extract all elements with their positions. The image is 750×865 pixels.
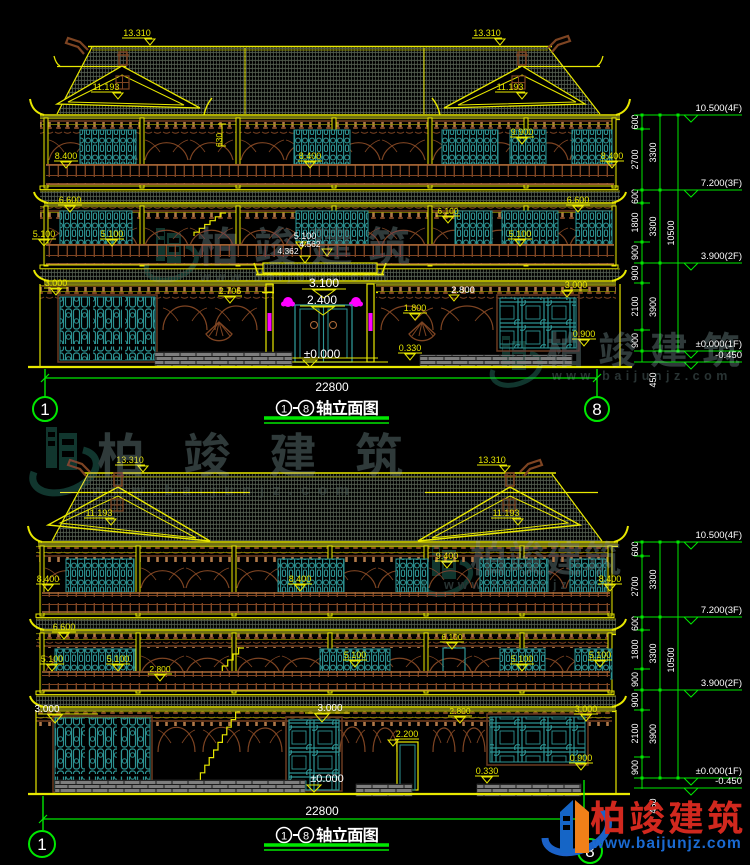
svg-text:5.100: 5.100 (33, 229, 56, 239)
svg-text:8: 8 (592, 400, 601, 419)
svg-text:7.200(3F): 7.200(3F) (701, 605, 742, 616)
svg-text:5.100: 5.100 (107, 654, 130, 664)
svg-text:0.330: 0.330 (476, 766, 499, 776)
svg-text:www.baijunjz.com: www.baijunjz.com (443, 578, 616, 592)
svg-text:11.193: 11.193 (493, 508, 520, 518)
svg-text:±0.000(1F): ±0.000(1F) (696, 339, 742, 350)
svg-text:8.400: 8.400 (299, 151, 322, 161)
svg-text:±0.000: ±0.000 (310, 773, 344, 785)
svg-text:2700: 2700 (630, 576, 640, 596)
svg-text:10500: 10500 (666, 647, 676, 672)
svg-text:10.500(4F): 10.500(4F) (696, 103, 742, 114)
svg-text:900: 900 (630, 245, 640, 260)
svg-text:2100: 2100 (630, 723, 640, 743)
svg-text:-0.450: -0.450 (715, 776, 742, 787)
svg-text:9.900: 9.900 (511, 127, 534, 137)
svg-text:www.baijunjz.com: www.baijunjz.com (91, 482, 357, 499)
svg-text:www.baijunjz.com: www.baijunjz.com (551, 369, 732, 383)
svg-text:6.600: 6.600 (53, 622, 76, 632)
svg-text:www.baijunjz.com: www.baijunjz.com (199, 269, 392, 284)
svg-text:3.000: 3.000 (34, 704, 59, 715)
svg-text:11.193: 11.193 (93, 82, 120, 92)
svg-text:7.200(3F): 7.200(3F) (701, 178, 742, 189)
svg-text:10500: 10500 (666, 220, 676, 245)
svg-text:5.100: 5.100 (101, 229, 124, 239)
svg-text:3300: 3300 (648, 569, 658, 589)
svg-text:5.100: 5.100 (344, 650, 367, 660)
svg-text:8.400: 8.400 (37, 574, 60, 584)
svg-text:13.310: 13.310 (478, 455, 506, 465)
svg-text:1: 1 (281, 404, 287, 416)
svg-text:8.400: 8.400 (601, 151, 624, 161)
svg-text:6.100: 6.100 (441, 632, 463, 642)
svg-text:8.400: 8.400 (289, 574, 312, 584)
svg-text:11.193: 11.193 (86, 508, 113, 518)
svg-text:3300: 3300 (648, 643, 658, 663)
svg-text:6.600: 6.600 (59, 195, 82, 205)
svg-text:1800: 1800 (630, 212, 640, 232)
svg-text:5.100: 5.100 (511, 654, 534, 664)
svg-text:3300: 3300 (648, 142, 658, 162)
svg-text:1: 1 (37, 835, 46, 854)
svg-text:13.310: 13.310 (123, 28, 151, 38)
svg-text:1800: 1800 (630, 639, 640, 659)
svg-text:1: 1 (281, 831, 287, 843)
svg-text:3900: 3900 (648, 297, 658, 317)
svg-text:600: 600 (630, 114, 640, 129)
svg-text:13.310: 13.310 (473, 28, 501, 38)
svg-text:3.000: 3.000 (575, 704, 598, 714)
svg-text:2100: 2100 (630, 296, 640, 316)
svg-text:600: 600 (630, 189, 640, 204)
svg-text:2700: 2700 (630, 149, 640, 169)
svg-text:3.000: 3.000 (565, 280, 588, 290)
svg-text:3.000: 3.000 (317, 703, 342, 714)
svg-text:900: 900 (630, 760, 640, 775)
svg-text:10.500(4F): 10.500(4F) (696, 530, 742, 541)
svg-text:600: 600 (630, 541, 640, 556)
svg-text:5.100: 5.100 (589, 650, 612, 660)
svg-text:22800: 22800 (315, 380, 349, 394)
svg-text:2.800: 2.800 (449, 706, 471, 716)
svg-text:6.600: 6.600 (567, 195, 590, 205)
svg-text:600: 600 (630, 616, 640, 631)
svg-text:8: 8 (303, 404, 309, 416)
svg-text:1: 1 (40, 400, 49, 419)
svg-text:2.800: 2.800 (149, 664, 171, 674)
svg-text:900: 900 (630, 265, 640, 280)
svg-text:6.100: 6.100 (437, 206, 459, 216)
svg-text:1.800: 1.800 (404, 303, 427, 313)
svg-text:www.baijunjz.com: www.baijunjz.com (591, 835, 742, 852)
svg-text:3.900(2F): 3.900(2F) (701, 678, 742, 689)
svg-text:5.100: 5.100 (41, 654, 64, 664)
svg-text:0.900: 0.900 (570, 753, 593, 763)
svg-text:3.900(2F): 3.900(2F) (701, 251, 742, 262)
svg-text:8.400: 8.400 (55, 151, 78, 161)
svg-text:11.193: 11.193 (497, 82, 524, 92)
svg-text:0.900: 0.900 (573, 329, 596, 339)
svg-text:22800: 22800 (305, 804, 339, 818)
svg-text:2.200: 2.200 (396, 729, 419, 739)
svg-text:900: 900 (630, 692, 640, 707)
svg-text:0.330: 0.330 (399, 343, 422, 353)
svg-text:3.000: 3.000 (45, 278, 68, 288)
svg-text:2.706: 2.706 (219, 286, 242, 296)
svg-text:3300: 3300 (648, 216, 658, 236)
svg-text:±0.000: ±0.000 (304, 347, 341, 361)
svg-text:2.400: 2.400 (307, 293, 337, 307)
svg-text:8: 8 (303, 831, 309, 843)
svg-text:5.100: 5.100 (509, 229, 532, 239)
svg-text:900: 900 (630, 672, 640, 687)
svg-text:2.800: 2.800 (451, 285, 475, 296)
svg-text:3900: 3900 (648, 724, 658, 744)
